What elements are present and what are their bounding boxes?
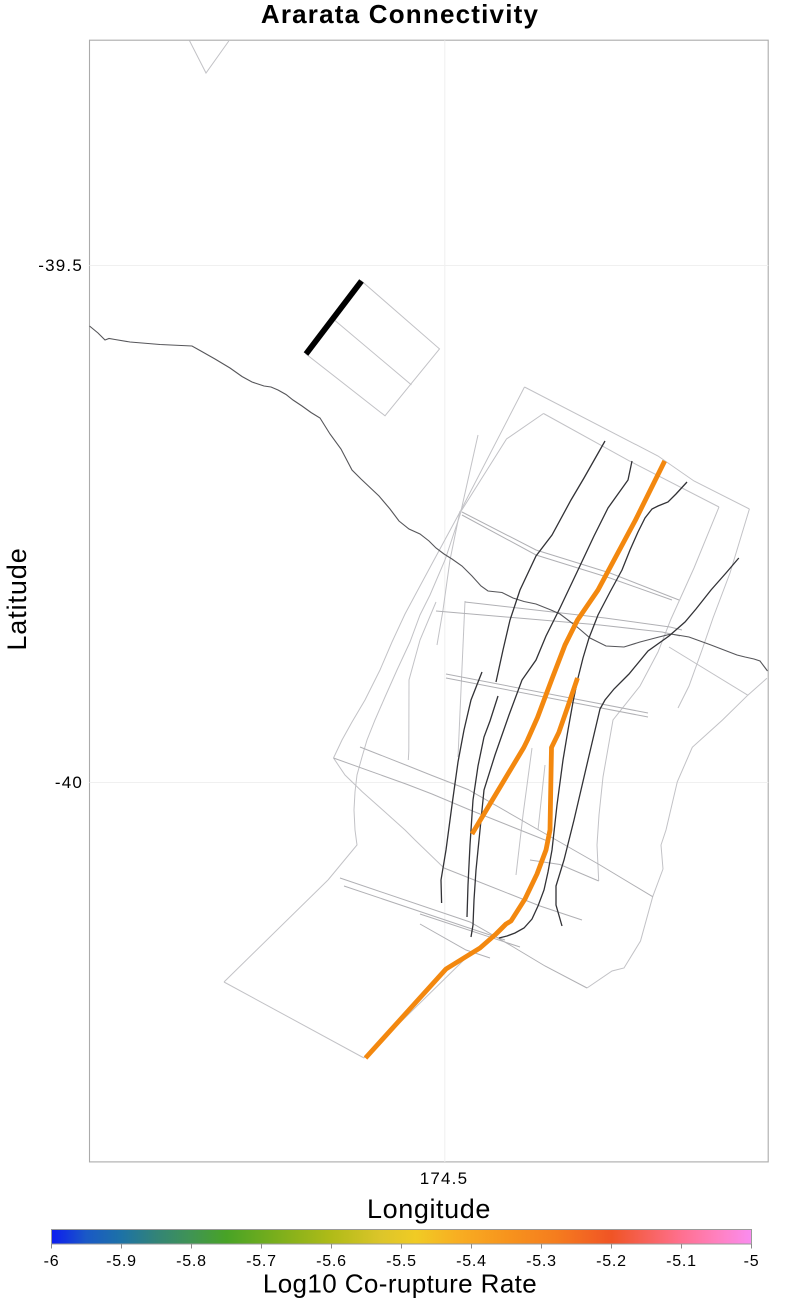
svg-text:-5.3: -5.3 bbox=[526, 1253, 557, 1270]
svg-text:-40: -40 bbox=[55, 773, 83, 792]
svg-text:Longitude: Longitude bbox=[367, 1194, 491, 1224]
svg-text:Ararata Connectivity: Ararata Connectivity bbox=[261, 0, 539, 29]
svg-text:-5.4: -5.4 bbox=[456, 1253, 487, 1270]
svg-text:Latitude: Latitude bbox=[2, 547, 32, 650]
svg-text:-5.2: -5.2 bbox=[596, 1253, 627, 1270]
svg-text:-5.6: -5.6 bbox=[316, 1253, 347, 1270]
svg-text:174.5: 174.5 bbox=[420, 1169, 469, 1188]
svg-text:-6: -6 bbox=[44, 1253, 60, 1270]
svg-text:-5.1: -5.1 bbox=[666, 1253, 697, 1270]
svg-text:-5.8: -5.8 bbox=[176, 1253, 207, 1270]
svg-text:-5.5: -5.5 bbox=[386, 1253, 417, 1270]
svg-text:-5: -5 bbox=[744, 1253, 760, 1270]
svg-text:Log10 Co-rupture Rate: Log10 Co-rupture Rate bbox=[263, 1269, 537, 1299]
svg-text:-5.9: -5.9 bbox=[106, 1253, 137, 1270]
svg-text:-39.5: -39.5 bbox=[38, 256, 83, 275]
svg-text:-5.7: -5.7 bbox=[246, 1253, 277, 1270]
